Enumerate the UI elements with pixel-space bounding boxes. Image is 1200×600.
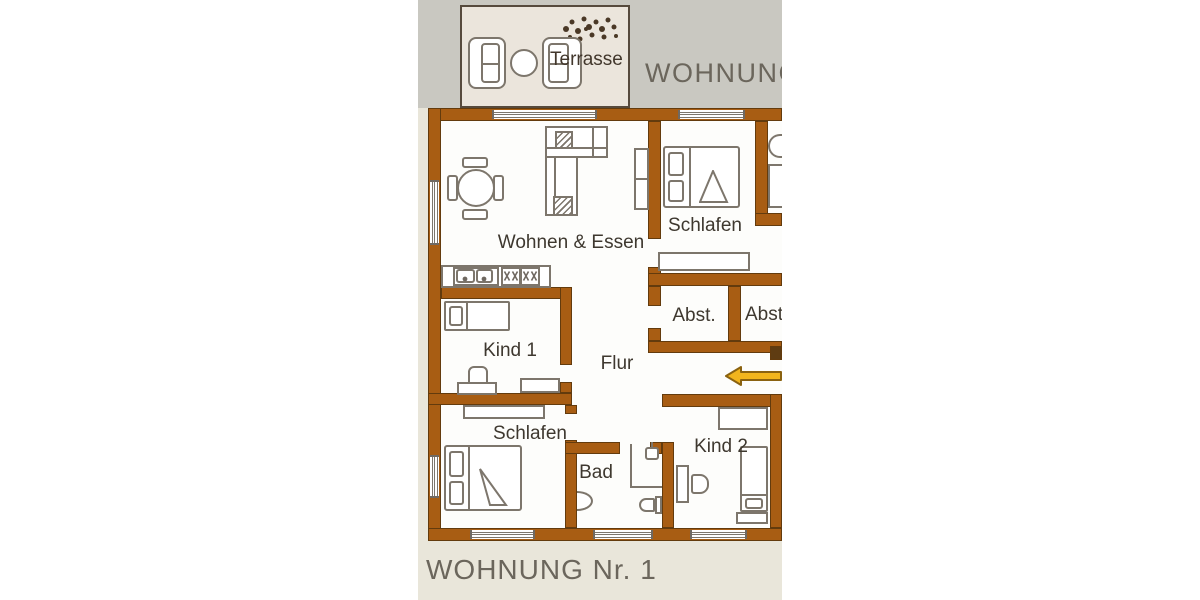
- single-bed-icon: [444, 301, 510, 331]
- room-label-storage-left: Abst.: [672, 305, 715, 327]
- bed-headboard-line: [468, 446, 470, 510]
- wall-storage-left-lower: [648, 328, 661, 341]
- window-bedroom2-bottom: [470, 530, 535, 539]
- wall-storage-bottom: [648, 341, 782, 353]
- room-label-storage-right: Abst.: [745, 304, 782, 326]
- armchair-cushion: [481, 43, 500, 83]
- toilet-tank-icon: [655, 496, 662, 514]
- wall-child1-right: [560, 287, 572, 365]
- sofa-arm-line: [592, 127, 594, 157]
- wall-neighbour-stub: [755, 213, 782, 226]
- terrace-label: Terrasse: [550, 49, 623, 71]
- desk-icon: [457, 382, 497, 395]
- terrace-table-icon: [510, 49, 538, 77]
- pillow-icon: [745, 498, 763, 509]
- window-living-top: [492, 110, 597, 119]
- pillow-icon: [668, 180, 684, 202]
- blanket-fold-icon: [478, 467, 508, 507]
- wall-bedroom2-right-upper: [565, 405, 577, 414]
- kitchen-counter-icon: [441, 265, 551, 288]
- wall-bedroom-storage: [648, 273, 782, 286]
- wall-bath-child2: [662, 442, 674, 528]
- window-bedroom2-left: [430, 455, 439, 498]
- dining-chair-icon: [447, 175, 458, 201]
- dining-table-icon: [457, 169, 495, 207]
- window-bath-bottom: [593, 530, 653, 539]
- wall-storage-left-upper: [648, 286, 661, 306]
- wall-bath-top: [565, 442, 620, 454]
- wardrobe-icon: [463, 405, 545, 419]
- room-label-living: Wohnen & Essen: [498, 232, 644, 254]
- bed-headboard-line: [466, 302, 468, 330]
- entrance-jamb: [770, 346, 782, 360]
- wall-child1-door-stub: [560, 382, 572, 393]
- neighbour-tub-icon: [768, 164, 782, 208]
- floorplan-image: WOHNUNG N Terrasse: [418, 0, 782, 600]
- shower-head-icon: [645, 447, 659, 460]
- apartment-title: WOHNUNG Nr. 1: [426, 554, 657, 586]
- window-child2-bottom: [690, 530, 747, 539]
- desk-chair-icon: [691, 474, 709, 494]
- sofa-cushion-icon: [555, 131, 573, 149]
- wardrobe-icon: [658, 252, 750, 271]
- terrace-armchair-left-icon: [468, 37, 506, 89]
- double-bed-icon: [444, 445, 522, 511]
- pillow-icon: [449, 451, 464, 477]
- double-bed-icon: [663, 146, 740, 208]
- bed-headboard-line: [741, 494, 767, 496]
- sideboard-shelf-line: [635, 178, 648, 180]
- wall-child2-top: [662, 394, 775, 407]
- wall-storage-divider: [728, 286, 741, 341]
- room-label-hall: Flur: [601, 353, 634, 375]
- wall-kitchen-child1: [441, 287, 572, 299]
- sofa-cushion-icon: [553, 196, 573, 216]
- window-living-left: [430, 180, 439, 245]
- shelf-icon: [520, 378, 560, 393]
- room-label-bedroom-bottom: Schlafen: [493, 423, 567, 445]
- wall-child2-right: [770, 394, 782, 528]
- terrace: Terrasse: [460, 5, 630, 108]
- bed-base-icon: [736, 512, 768, 524]
- room-label-child1: Kind 1: [483, 340, 537, 362]
- desk-icon: [676, 465, 689, 503]
- room-label-bedroom-top: Schlafen: [668, 215, 742, 237]
- wall-child1-bedroom2: [428, 393, 572, 405]
- toilet-icon: [639, 498, 655, 512]
- dining-chair-icon: [462, 157, 488, 168]
- blanket-fold-icon: [699, 170, 729, 204]
- room-label-bath: Bad: [579, 462, 613, 484]
- entrance-arrow-icon: [725, 365, 782, 387]
- dining-chair-icon: [462, 209, 488, 220]
- window-bedroom-top: [678, 110, 745, 119]
- pillow-icon: [668, 152, 684, 176]
- dining-chair-icon: [493, 175, 504, 201]
- wall-living-bedroom: [648, 121, 661, 239]
- sideboard-icon: [634, 148, 649, 210]
- wall-neighbour-vertical: [755, 121, 768, 226]
- pillow-icon: [449, 306, 463, 326]
- room-label-child2: Kind 2: [694, 436, 748, 458]
- pillow-icon: [449, 481, 464, 505]
- bed-headboard-line: [689, 147, 691, 207]
- wardrobe-icon: [718, 407, 768, 430]
- neighbour-apartment-title: WOHNUNG N: [645, 58, 782, 89]
